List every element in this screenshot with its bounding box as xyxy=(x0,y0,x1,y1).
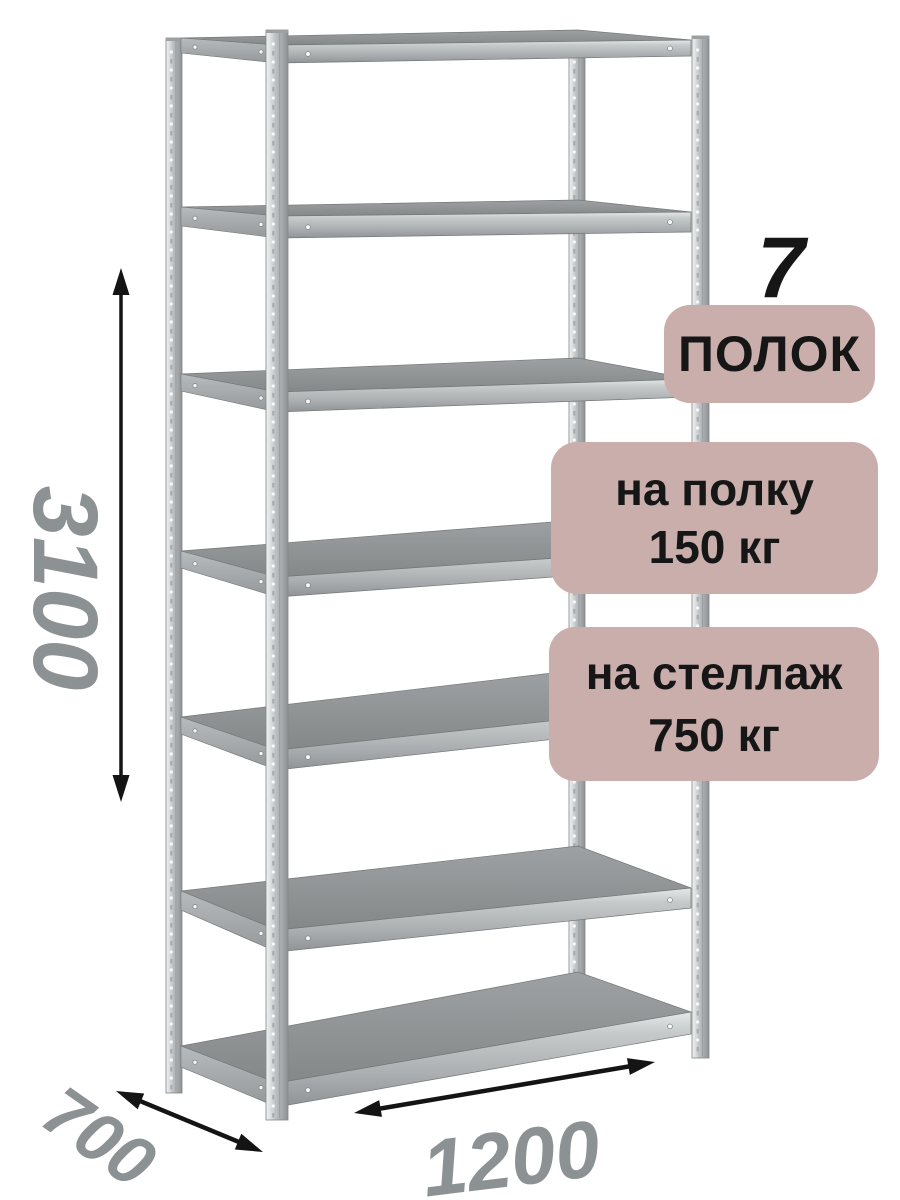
post-back-left xyxy=(166,38,182,1093)
shelf-count-badge-label: ПОЛОК xyxy=(678,325,861,383)
height-dimension-label: 3100 xyxy=(10,438,120,738)
shelf-3 xyxy=(181,358,691,412)
per-rack-load-line1: на стеллаж xyxy=(586,642,842,704)
shelf-7 xyxy=(181,972,691,1107)
shelf-count-badge: ПОЛОК xyxy=(664,305,875,403)
per-shelf-load-badge: на полку 150 кг xyxy=(551,442,878,594)
shelf-count-number: 7 xyxy=(721,218,841,318)
post-front-left xyxy=(266,30,288,1120)
shelf-1 xyxy=(181,30,691,63)
shelf-6 xyxy=(181,846,691,952)
per-rack-load-badge: на стеллаж 750 кг xyxy=(549,627,879,781)
per-rack-load-line2: 750 кг xyxy=(648,704,780,766)
product-image: 3100 700 1200 7 ПОЛОК на полку 150 кг на… xyxy=(0,0,900,1200)
per-shelf-load-line1: на полку xyxy=(615,460,814,518)
rack-illustration xyxy=(0,0,900,1200)
shelf-2 xyxy=(181,200,691,238)
per-shelf-load-line2: 150 кг xyxy=(649,518,781,576)
